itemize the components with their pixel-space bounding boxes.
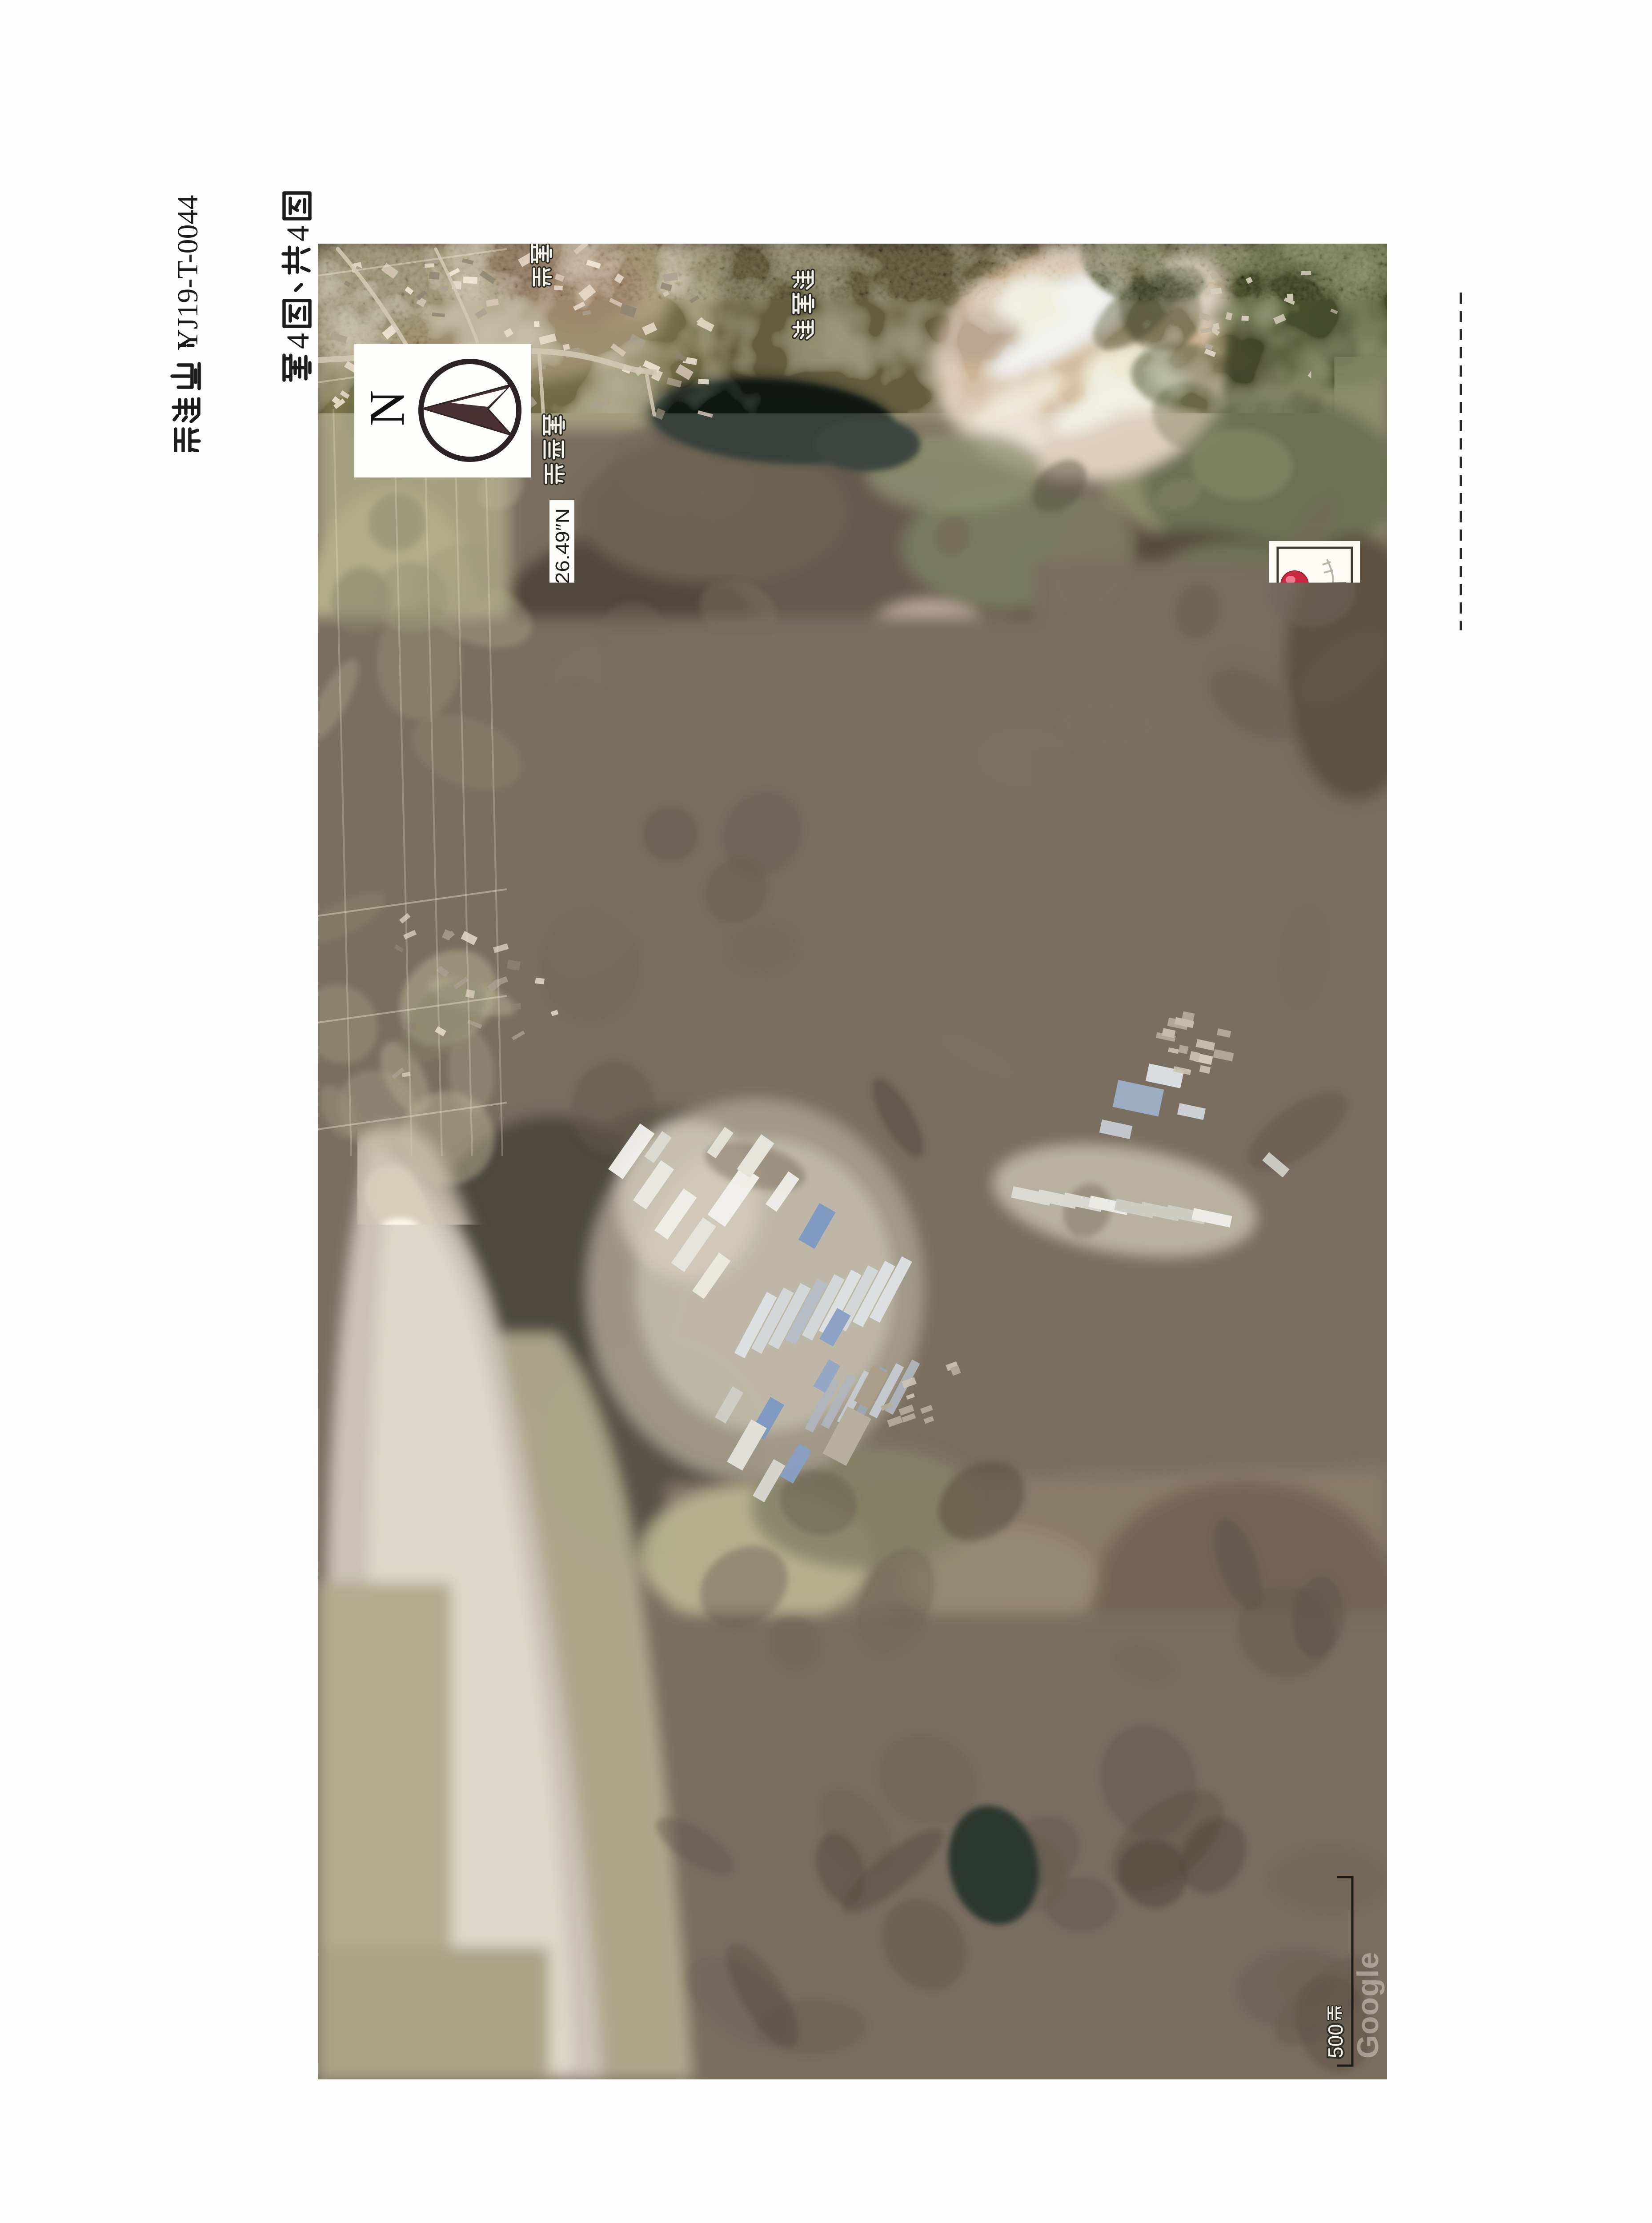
svg-text:X104: X104	[375, 954, 389, 985]
svg-text:4: 4	[280, 225, 316, 241]
svg-text:07: 07	[973, 1943, 994, 1963]
svg-text:06: 06	[1267, 1700, 1288, 1721]
svg-text:YJ19-T-0044: YJ19-T-0044	[172, 195, 204, 350]
svg-text:200: 200	[1267, 1453, 1288, 1485]
svg-text:Google: Google	[1351, 1952, 1385, 2058]
svg-text:4: 4	[280, 333, 316, 349]
svg-text:08: 08	[552, 1105, 573, 1126]
svg-text:500: 500	[1324, 2024, 1347, 2058]
svg-text:106° 47′56.64″E 33° 06′14.54″N: 106° 47′56.64″E 33° 06′14.54″N	[1267, 1136, 1288, 1428]
svg-text:200: 200	[552, 896, 573, 929]
svg-text:106° 47′50.45″E 33° 07′26.49″N: 106° 47′50.45″E 33° 07′26.49″N	[552, 508, 573, 807]
svg-text:300: 300	[973, 1766, 994, 1797]
svg-text:X104: X104	[666, 1295, 680, 1326]
svg-text:106° 47′23.35″E 33° 06′45.49″N: 106° 47′23.35″E 33° 06′45.49″N	[973, 1461, 994, 1743]
svg-text:N: N	[360, 390, 415, 426]
svg-text:X104: X104	[574, 1044, 589, 1075]
